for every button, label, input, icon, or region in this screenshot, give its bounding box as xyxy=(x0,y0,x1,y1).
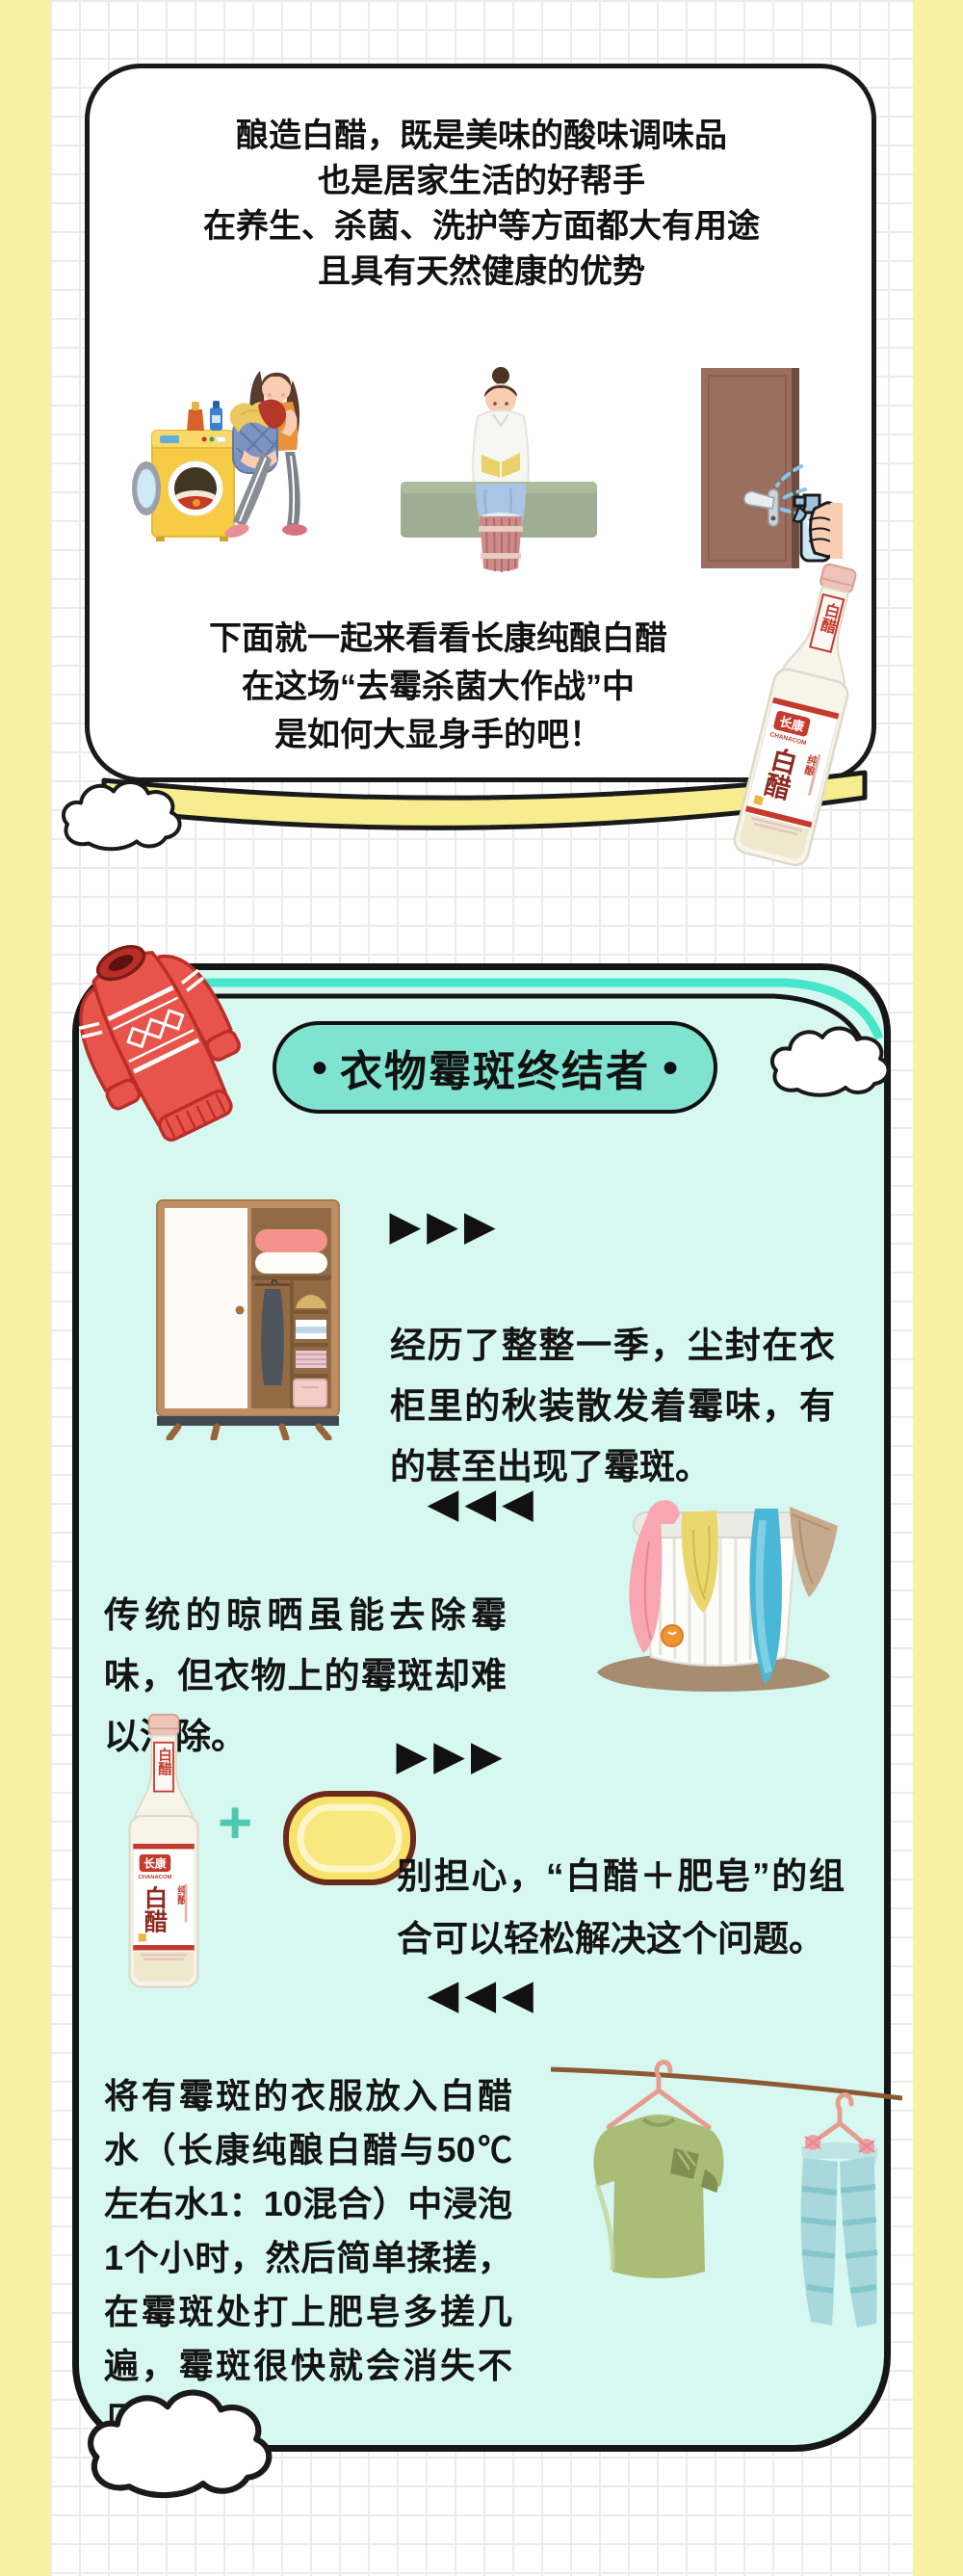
para3-bold: “白醋＋肥皂” xyxy=(546,1856,770,1896)
title-dot-icon: ● xyxy=(311,1051,328,1084)
marker-arrows-right: ▶▶▶ xyxy=(397,1734,508,1778)
vinegar-promo-poster: 白醋 长康 CHANACOM 白醋 纯酿 酿造白醋，既是美味的酸味调味品 也是 xyxy=(0,0,963,2576)
cloud-icon xyxy=(85,2368,292,2508)
intro-outro-text: 下面就一起来看看长康纯酿白醋 在这场“去霉杀菌大作战”中 是如何大显身手的吧！ xyxy=(106,615,770,759)
marker-arrows-left: ◀◀◀ xyxy=(429,1973,540,2017)
laundry-basket-illustration xyxy=(559,1453,862,1713)
outro-line: 是如何大显身手的吧！ xyxy=(106,711,770,759)
section-title: 衣物霉斑终结者 xyxy=(340,1037,650,1098)
intro-line: 酿造白醋，既是美味的酸味调味品 xyxy=(96,114,867,159)
title-dot-icon: ● xyxy=(662,1051,679,1084)
washing-machine-illustration xyxy=(96,342,366,568)
section-title-pill: ● 衣物霉斑终结者 ● xyxy=(273,1021,717,1114)
paragraph-vinegar-soap: 别担心，“白醋＋肥皂”的组合可以轻松解决这个问题。 xyxy=(397,1845,845,1970)
clothesline-illustration xyxy=(551,2035,902,2362)
marker-arrows-right: ▶▶▶ xyxy=(390,1204,502,1249)
cloud-icon xyxy=(768,1013,903,1102)
outro-line: 在这场“去霉杀菌大作战”中 xyxy=(106,663,770,711)
para3-pre: 别担心， xyxy=(397,1856,546,1896)
plus-sign: + xyxy=(218,1794,252,1853)
intro-line: 且具有天然健康的优势 xyxy=(96,250,867,295)
marker-arrows-left: ◀◀◀ xyxy=(429,1482,540,1526)
red-sweater-illustration xyxy=(40,927,281,1163)
vinegar-bottle-small xyxy=(116,1713,212,1992)
intro-line: 在养生、杀菌、洗护等方面都大有用途 xyxy=(96,204,867,250)
wardrobe-illustration xyxy=(149,1195,347,1440)
outro-line: 下面就一起来看看长康纯酿白醋 xyxy=(106,615,770,663)
intro-line: 也是居家生活的好帮手 xyxy=(96,159,867,204)
intro-text: 酿造白醋，既是美味的酸味调味品 也是居家生活的好帮手 在养生、杀菌、洗护等方面都… xyxy=(96,114,867,295)
door-spray-illustration xyxy=(655,358,843,578)
cloud-icon xyxy=(60,766,195,857)
basin-washing-illustration xyxy=(393,355,605,574)
